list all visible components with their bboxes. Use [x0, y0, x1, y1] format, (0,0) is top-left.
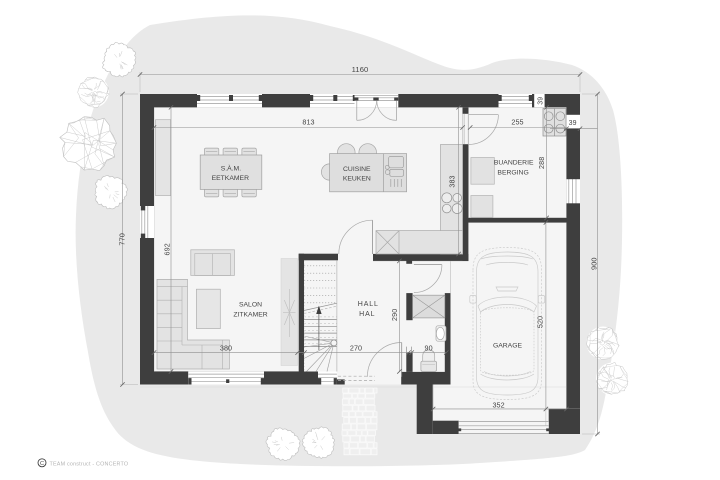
svg-text:900: 900 — [590, 257, 599, 270]
svg-text:EETKAMER: EETKAMER — [212, 175, 249, 182]
svg-text:CUISINE: CUISINE — [343, 166, 371, 173]
svg-text:KEUKEN: KEUKEN — [343, 176, 371, 183]
svg-text:255: 255 — [511, 117, 523, 126]
svg-text:S.À.M.: S.À.M. — [221, 164, 242, 173]
svg-text:90: 90 — [424, 343, 432, 352]
svg-text:383: 383 — [448, 175, 457, 187]
svg-text:380: 380 — [220, 343, 232, 352]
svg-text:BUANDERIE: BUANDERIE — [494, 159, 534, 166]
svg-text:GARAGE: GARAGE — [493, 343, 523, 350]
svg-text:TEAM construct - CONCERTO: TEAM construct - CONCERTO — [50, 461, 129, 467]
svg-text:39: 39 — [538, 97, 545, 105]
svg-text:1160: 1160 — [352, 65, 369, 74]
svg-text:ZITKAMER: ZITKAMER — [233, 311, 267, 318]
svg-text:39: 39 — [569, 120, 577, 127]
svg-text:270: 270 — [350, 343, 362, 352]
svg-text:SALON: SALON — [239, 302, 262, 309]
svg-text:352: 352 — [492, 400, 504, 409]
svg-text:813: 813 — [302, 117, 314, 126]
svg-text:HALL: HALL — [358, 301, 379, 308]
svg-text:C: C — [40, 461, 44, 467]
svg-text:770: 770 — [117, 233, 126, 246]
svg-text:290: 290 — [390, 309, 399, 321]
svg-text:692: 692 — [162, 243, 171, 255]
svg-text:HAL: HAL — [359, 311, 375, 318]
svg-text:288: 288 — [537, 157, 546, 169]
svg-text:BERGING: BERGING — [497, 170, 528, 177]
svg-text:520: 520 — [536, 316, 545, 328]
